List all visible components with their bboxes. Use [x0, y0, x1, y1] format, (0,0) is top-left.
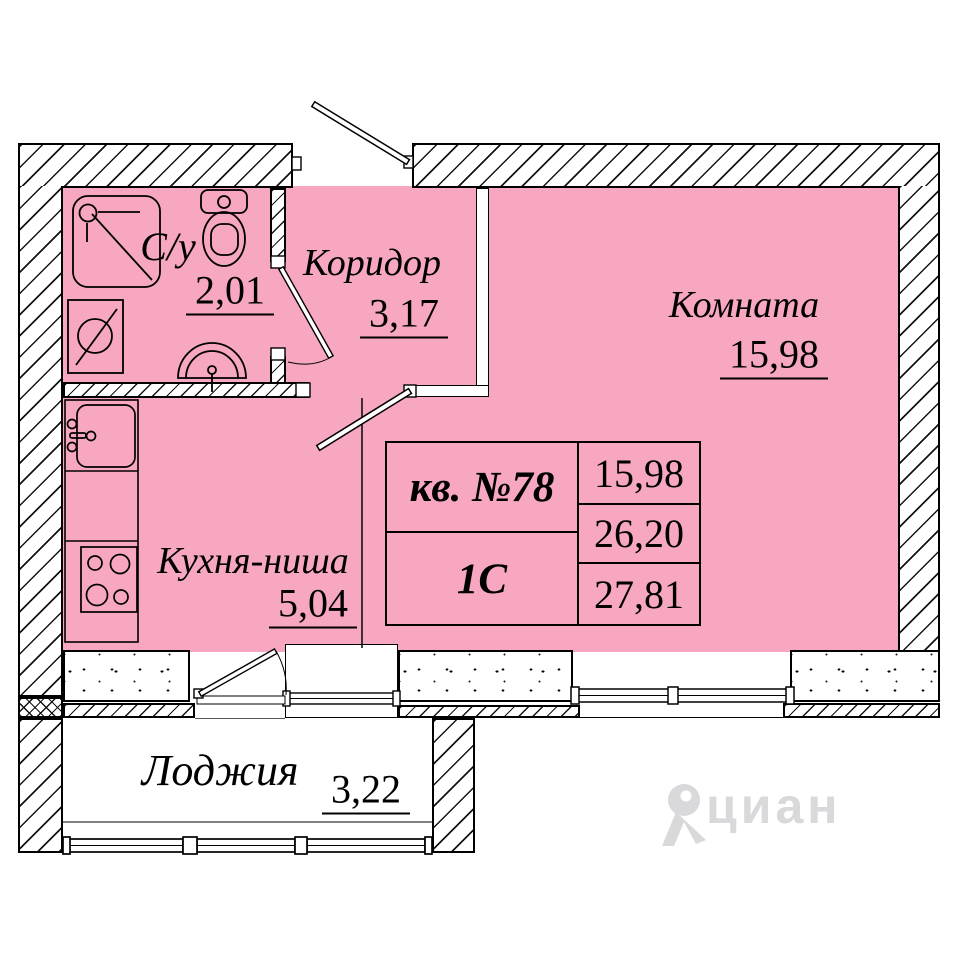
toilet	[201, 190, 247, 266]
apartment-info-table: кв. №78 1С 15,98 26,20 27,81	[385, 441, 701, 626]
balcony-door-threshold	[197, 696, 285, 704]
table-cell-area: 26,20	[579, 505, 699, 562]
balcony-door	[199, 649, 287, 696]
room-label-loggia: Лоджия	[142, 749, 299, 793]
entrance-door	[312, 102, 410, 165]
room-area-kitchen: 5,04	[269, 584, 357, 629]
watermark-pin-icon	[662, 784, 706, 846]
floor-plan: С/у 2,01 Коридор 3,17 Комната 15,98 Кухн…	[0, 0, 960, 960]
room-label-room: Комната	[669, 286, 819, 324]
room-area-bathroom: 2,01	[186, 271, 274, 316]
table-cell-total-area: 27,81	[579, 564, 699, 624]
kitchen-window	[283, 691, 400, 706]
watermark-text: циан	[706, 777, 841, 835]
table-cell-living-area: 15,98	[579, 443, 699, 503]
bathroom-sink	[178, 343, 246, 392]
washing-machine	[68, 300, 123, 373]
kitchen-counter	[65, 400, 138, 642]
room-label-bathroom: С/у	[140, 227, 196, 267]
room-label-kitchen: Кухня-ниша	[157, 542, 349, 580]
stove	[81, 547, 137, 612]
loggia-glazing	[63, 822, 432, 854]
room-area-loggia: 3,22	[322, 770, 410, 815]
room-area-corridor: 3,17	[360, 294, 448, 339]
room-label-corridor: Коридор	[303, 244, 441, 282]
table-cell-apartment-number: кв. №78	[387, 443, 577, 531]
kitchen-sink	[68, 405, 136, 467]
room-area-room: 15,98	[720, 335, 828, 380]
table-cell-apartment-type: 1С	[387, 534, 577, 624]
room-window	[571, 687, 794, 704]
